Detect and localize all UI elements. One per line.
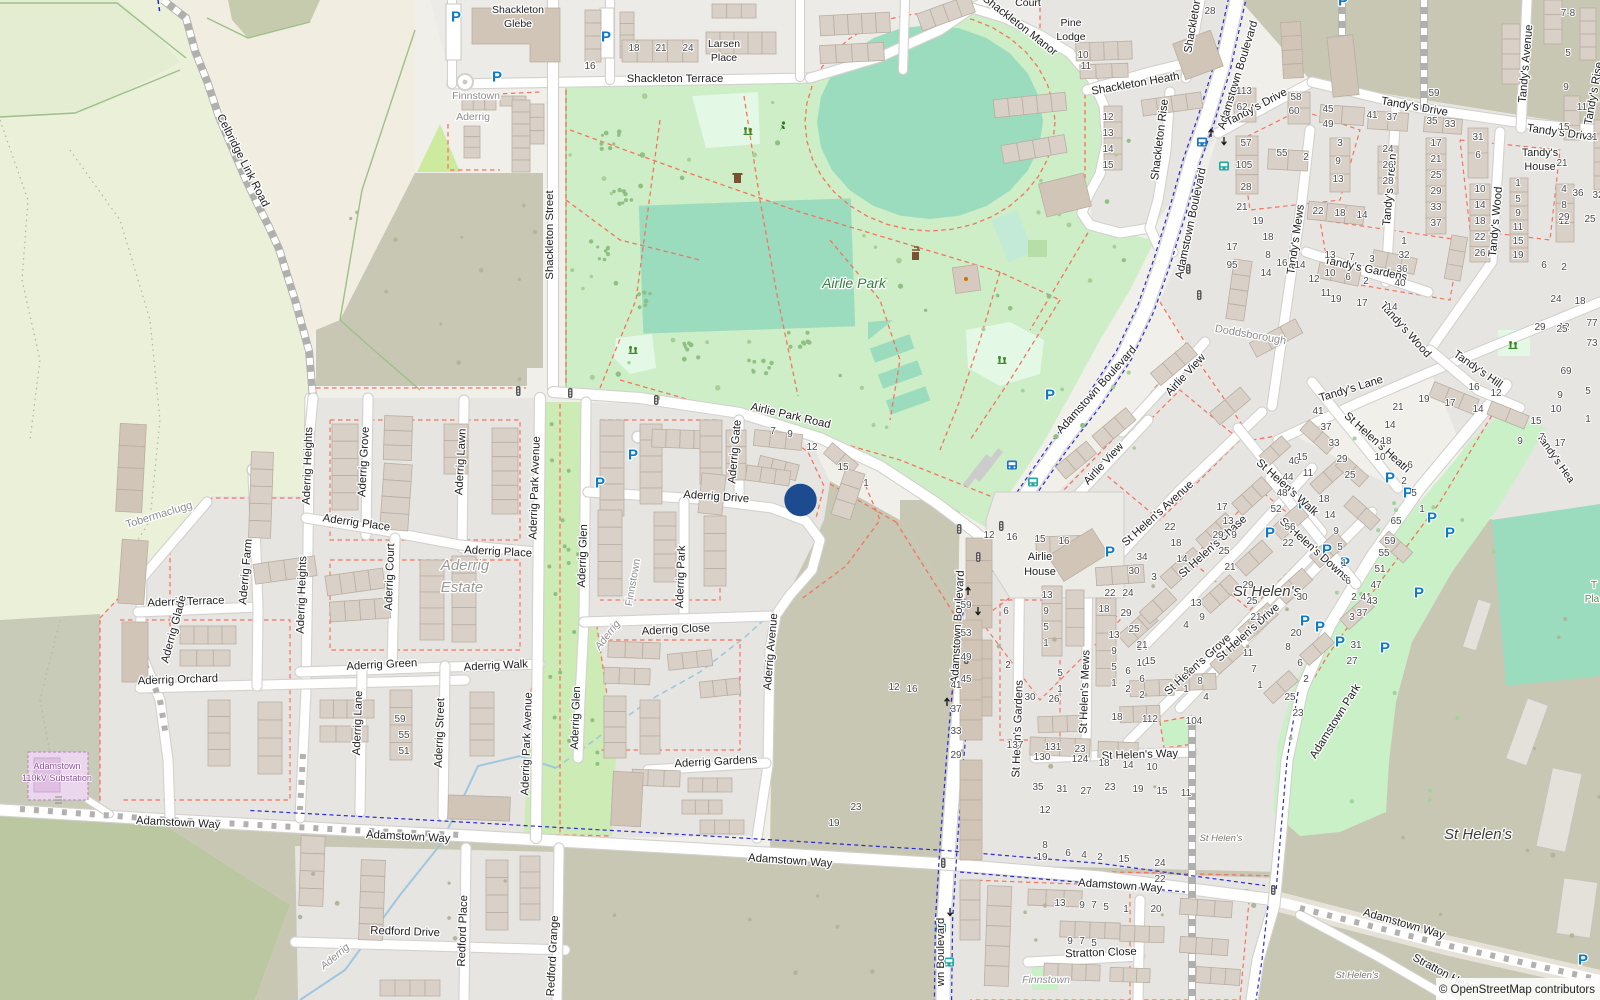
svg-text:Aderrig: Aderrig — [456, 111, 490, 123]
svg-text:35: 35 — [1426, 116, 1438, 127]
svg-text:Redford Place: Redford Place — [456, 895, 470, 967]
svg-text:23: 23 — [1292, 708, 1304, 719]
svg-text:P: P — [1045, 386, 1055, 403]
svg-text:104: 104 — [1186, 716, 1203, 727]
svg-text:105: 105 — [1236, 160, 1253, 171]
svg-text:Adamstown: Adamstown — [33, 761, 80, 771]
svg-text:49: 49 — [960, 652, 972, 663]
svg-text:45: 45 — [960, 674, 972, 685]
svg-text:41: 41 — [950, 680, 962, 691]
svg-text:18: 18 — [1098, 758, 1110, 769]
svg-text:14: 14 — [1260, 268, 1272, 279]
svg-text:22: 22 — [1154, 874, 1166, 885]
svg-text:P: P — [1105, 543, 1115, 560]
svg-text:P: P — [1300, 612, 1310, 629]
svg-text:P: P — [1385, 469, 1395, 486]
svg-text:33: 33 — [950, 726, 962, 737]
svg-text:26: 26 — [1474, 248, 1486, 259]
svg-text:12: 12 — [1102, 112, 1114, 123]
svg-text:25: 25 — [1430, 170, 1442, 181]
svg-text:5: 5 — [1057, 668, 1063, 679]
svg-text:Pine: Pine — [1060, 17, 1081, 29]
svg-text:© OpenStreetMap contributors: © OpenStreetMap contributors — [1439, 984, 1595, 996]
svg-text:25: 25 — [1128, 624, 1140, 635]
svg-text:13: 13 — [1332, 174, 1344, 185]
svg-text:47: 47 — [1370, 580, 1382, 591]
svg-text:8: 8 — [1285, 642, 1291, 653]
svg-text:18: 18 — [628, 43, 640, 54]
svg-text:3: 3 — [1337, 138, 1343, 149]
svg-text:10: 10 — [1550, 404, 1562, 415]
svg-text:31: 31 — [1350, 640, 1362, 651]
svg-text:St Helen's: St Helen's — [1335, 970, 1378, 981]
svg-text:1: 1 — [1515, 178, 1521, 189]
svg-text:9: 9 — [1517, 436, 1523, 447]
svg-text:P: P — [1335, 633, 1345, 650]
svg-text:29: 29 — [1336, 454, 1348, 465]
svg-text:16: 16 — [1468, 382, 1480, 393]
svg-text:Shackleton Terrace: Shackleton Terrace — [627, 73, 724, 85]
svg-text:22: 22 — [1474, 232, 1486, 243]
svg-text:55: 55 — [1378, 548, 1390, 559]
svg-text:73: 73 — [1586, 338, 1598, 349]
svg-text:18: 18 — [1574, 296, 1586, 307]
svg-text:23: 23 — [1104, 782, 1116, 793]
svg-text:29: 29 — [950, 750, 962, 761]
svg-text:6: 6 — [1297, 658, 1303, 669]
svg-text:P: P — [1380, 639, 1390, 656]
svg-text:6: 6 — [1475, 150, 1481, 161]
svg-text:4: 4 — [1203, 692, 1209, 703]
svg-text:28: 28 — [1240, 182, 1252, 193]
svg-text:P: P — [595, 474, 605, 491]
svg-text:5: 5 — [1043, 622, 1049, 633]
svg-text:25: 25 — [1246, 596, 1258, 607]
svg-text:18: 18 — [1380, 436, 1392, 447]
svg-text:P: P — [1315, 618, 1325, 635]
svg-text:15: 15 — [1034, 534, 1046, 545]
svg-text:15: 15 — [1102, 160, 1114, 171]
svg-text:29: 29 — [1430, 186, 1442, 197]
svg-text:37: 37 — [1430, 218, 1442, 229]
svg-text:5: 5 — [1585, 386, 1591, 397]
svg-text:Larsen: Larsen — [708, 38, 740, 50]
svg-text:21: 21 — [1250, 612, 1262, 623]
svg-text:P: P — [1445, 524, 1455, 541]
svg-text:6: 6 — [1345, 272, 1351, 283]
svg-text:51: 51 — [1374, 564, 1386, 575]
svg-text:43: 43 — [1366, 596, 1378, 607]
svg-text:5: 5 — [1515, 194, 1521, 205]
svg-text:17: 17 — [1226, 242, 1238, 253]
svg-text:45: 45 — [1322, 104, 1334, 115]
svg-text:7-8: 7-8 — [1561, 8, 1576, 19]
svg-text:Tandy's: Tandy's — [1522, 147, 1559, 159]
svg-text:2: 2 — [1005, 660, 1011, 671]
svg-text:19: 19 — [1252, 216, 1264, 227]
svg-text:21: 21 — [1392, 402, 1404, 413]
svg-text:31: 31 — [1472, 132, 1484, 143]
svg-text:Aderrig Street: Aderrig Street — [433, 697, 447, 768]
svg-text:17: 17 — [1356, 298, 1368, 309]
svg-text:37: 37 — [1320, 422, 1332, 433]
svg-text:9: 9 — [1557, 390, 1563, 401]
svg-text:10: 10 — [1374, 452, 1386, 463]
svg-text:24: 24 — [1550, 294, 1562, 305]
svg-text:6: 6 — [1345, 576, 1351, 587]
svg-text:Glebe: Glebe — [504, 18, 532, 30]
svg-text:14: 14 — [1122, 760, 1134, 771]
svg-text:124: 124 — [1072, 754, 1089, 765]
svg-text:Aderrig Lane: Aderrig Lane — [351, 690, 365, 755]
svg-text:36: 36 — [1396, 264, 1408, 275]
svg-text:P: P — [1265, 524, 1275, 541]
svg-text:6: 6 — [1003, 606, 1009, 617]
svg-text:53: 53 — [960, 628, 972, 639]
svg-text:113: 113 — [1236, 86, 1252, 97]
svg-text:28: 28 — [1382, 176, 1394, 187]
svg-text:11: 11 — [1181, 788, 1192, 799]
svg-text:1: 1 — [863, 478, 869, 489]
svg-text:2: 2 — [1351, 592, 1357, 603]
svg-text:29: 29 — [1242, 580, 1254, 591]
svg-text:8: 8 — [1265, 250, 1271, 261]
svg-text:12: 12 — [983, 530, 995, 541]
svg-text:15: 15 — [1144, 656, 1156, 667]
svg-text:House: House — [1524, 161, 1555, 173]
svg-text:15: 15 — [1558, 122, 1570, 133]
svg-text:25: 25 — [1584, 214, 1596, 225]
svg-text:40: 40 — [1394, 278, 1406, 289]
svg-text:6: 6 — [1541, 260, 1547, 271]
svg-text:Estate: Estate — [441, 579, 484, 596]
svg-text:11: 11 — [1081, 61, 1092, 72]
svg-text:12: 12 — [1039, 805, 1051, 816]
svg-text:21: 21 — [1224, 562, 1236, 573]
svg-text:22: 22 — [1282, 538, 1294, 549]
svg-text:30: 30 — [1296, 592, 1308, 603]
svg-text:2: 2 — [1139, 690, 1145, 701]
svg-text:34: 34 — [1136, 552, 1148, 563]
svg-text:12: 12 — [806, 442, 818, 453]
svg-text:27: 27 — [1346, 656, 1358, 667]
svg-text:Aderrig Court: Aderrig Court — [383, 542, 397, 610]
svg-text:11: 11 — [1303, 468, 1314, 479]
svg-text:13: 13 — [1324, 250, 1336, 261]
svg-text:24: 24 — [1154, 858, 1166, 869]
svg-text:30: 30 — [1128, 566, 1140, 577]
svg-text:Redford Drive: Redford Drive — [370, 925, 440, 939]
svg-text:14: 14 — [1324, 510, 1336, 521]
svg-text:16: 16 — [584, 61, 596, 72]
svg-text:17: 17 — [1430, 138, 1442, 149]
svg-text:33: 33 — [1430, 202, 1442, 213]
svg-text:59: 59 — [960, 600, 972, 611]
svg-text:4: 4 — [1081, 850, 1087, 861]
svg-text:112: 112 — [1142, 714, 1158, 725]
svg-text:5: 5 — [1565, 48, 1571, 59]
svg-text:7: 7 — [1091, 900, 1097, 911]
svg-text:51: 51 — [398, 746, 410, 757]
svg-text:15: 15 — [1296, 452, 1308, 463]
svg-text:19: 19 — [1036, 852, 1048, 863]
svg-text:65: 65 — [1390, 516, 1402, 527]
svg-text:9: 9 — [1199, 612, 1205, 623]
svg-text:Finnstown: Finnstown — [452, 90, 500, 102]
svg-text:House: House — [1024, 566, 1056, 578]
svg-text:P: P — [628, 446, 638, 463]
svg-text:19: 19 — [1132, 784, 1144, 795]
svg-text:6: 6 — [1065, 848, 1071, 859]
svg-text:P: P — [492, 68, 502, 85]
svg-text:10: 10 — [1146, 762, 1158, 773]
svg-text:49: 49 — [1322, 119, 1334, 130]
svg-text:25: 25 — [1556, 324, 1568, 335]
svg-text:33: 33 — [1444, 119, 1456, 130]
svg-text:17: 17 — [1554, 438, 1566, 449]
svg-text:4: 4 — [1561, 184, 1567, 195]
svg-text:2: 2 — [1097, 852, 1103, 863]
svg-text:18: 18 — [1334, 208, 1346, 219]
svg-text:St Helen's: St Helen's — [1444, 826, 1512, 843]
svg-text:12: 12 — [1490, 388, 1502, 399]
svg-text:18: 18 — [1170, 538, 1182, 549]
svg-text:1: 1 — [1419, 504, 1425, 515]
svg-text:55: 55 — [398, 730, 410, 741]
svg-text:35: 35 — [1032, 782, 1044, 793]
svg-text:31: 31 — [1586, 132, 1598, 143]
svg-text:P: P — [1578, 951, 1588, 968]
svg-text:1: 1 — [1341, 558, 1347, 569]
svg-text:16: 16 — [1058, 536, 1070, 547]
svg-text:18: 18 — [1262, 232, 1274, 243]
svg-text:131: 131 — [1045, 742, 1062, 753]
svg-text:16: 16 — [906, 684, 918, 695]
svg-text:P: P — [451, 8, 461, 25]
svg-text:14: 14 — [1356, 210, 1368, 221]
svg-text:16: 16 — [1006, 532, 1018, 543]
svg-text:9: 9 — [1043, 606, 1049, 617]
svg-text:3: 3 — [1369, 254, 1375, 265]
svg-text:59: 59 — [394, 714, 406, 725]
svg-text:19: 19 — [1512, 250, 1524, 261]
svg-text:23: 23 — [1074, 744, 1086, 755]
svg-text:18: 18 — [1098, 604, 1110, 615]
svg-text:37: 37 — [1356, 608, 1368, 619]
svg-text:9: 9 — [1111, 646, 1117, 657]
svg-text:29: 29 — [1212, 530, 1224, 541]
svg-text:3: 3 — [1349, 612, 1355, 623]
svg-text:19: 19 — [1418, 394, 1430, 405]
svg-text:5: 5 — [1103, 902, 1109, 913]
svg-text:Stratton Close: Stratton Close — [1065, 946, 1137, 960]
svg-text:9: 9 — [1563, 82, 1569, 93]
svg-text:11: 11 — [1577, 102, 1588, 113]
svg-text:60: 60 — [1288, 106, 1300, 117]
svg-text:Lodge: Lodge — [1056, 31, 1085, 43]
svg-text:9: 9 — [1079, 900, 1085, 911]
svg-text:22: 22 — [1312, 206, 1324, 217]
svg-text:Pla: Pla — [1585, 594, 1600, 605]
svg-text:Place: Place — [711, 52, 737, 64]
svg-text:7: 7 — [770, 426, 776, 437]
svg-text:25: 25 — [1344, 470, 1356, 481]
svg-text:1: 1 — [1183, 684, 1189, 695]
svg-text:9: 9 — [1333, 526, 1339, 537]
svg-text:1: 1 — [1585, 414, 1591, 425]
svg-text:17: 17 — [1444, 398, 1456, 409]
svg-text:7: 7 — [1251, 664, 1257, 675]
svg-text:24: 24 — [682, 43, 694, 54]
svg-text:17: 17 — [1216, 502, 1228, 513]
svg-text:Shackleton: Shackleton — [492, 4, 544, 16]
svg-text:10: 10 — [1077, 50, 1089, 61]
svg-text:7: 7 — [1539, 432, 1545, 443]
svg-text:Aderrig Glen: Aderrig Glen — [569, 686, 583, 750]
svg-text:41: 41 — [1312, 406, 1324, 417]
svg-text:9: 9 — [1335, 156, 1341, 167]
svg-text:7: 7 — [1079, 936, 1085, 947]
svg-text:11: 11 — [1243, 648, 1254, 659]
svg-text:25: 25 — [1218, 546, 1230, 557]
svg-text:62: 62 — [1236, 102, 1248, 113]
svg-text:33: 33 — [1328, 438, 1340, 449]
svg-text:8: 8 — [1042, 840, 1048, 851]
svg-text:13: 13 — [1190, 598, 1202, 609]
svg-text:26: 26 — [1048, 694, 1060, 705]
svg-text:12: 12 — [1308, 274, 1320, 285]
svg-text:5: 5 — [1183, 666, 1189, 677]
svg-text:6: 6 — [1407, 460, 1413, 471]
svg-text:2: 2 — [1401, 476, 1407, 487]
svg-text:52: 52 — [1270, 504, 1282, 515]
svg-text:16: 16 — [1276, 258, 1288, 269]
svg-text:6: 6 — [1125, 666, 1131, 677]
svg-text:14: 14 — [1472, 404, 1484, 415]
svg-text:2: 2 — [1125, 684, 1131, 695]
svg-text:41: 41 — [1366, 110, 1378, 121]
svg-text:36: 36 — [1572, 188, 1584, 199]
svg-text:T: T — [1591, 580, 1597, 591]
svg-text:5: 5 — [1091, 938, 1097, 949]
svg-text:13: 13 — [1102, 128, 1114, 139]
svg-text:30: 30 — [1024, 692, 1036, 703]
svg-text:P: P — [1414, 584, 1424, 601]
svg-text:32: 32 — [1398, 250, 1410, 261]
svg-text:Court: Court — [1015, 0, 1041, 9]
svg-text:P: P — [1427, 509, 1437, 526]
svg-text:26: 26 — [1382, 160, 1394, 171]
svg-text:59: 59 — [1384, 536, 1396, 547]
svg-text:31: 31 — [1056, 784, 1068, 795]
svg-text:24: 24 — [1122, 588, 1134, 599]
svg-text:58: 58 — [1290, 92, 1302, 103]
svg-text:3: 3 — [1151, 572, 1157, 583]
svg-text:15: 15 — [1156, 786, 1168, 797]
svg-text:24: 24 — [1382, 144, 1394, 155]
svg-text:15: 15 — [1530, 416, 1542, 427]
svg-text:19: 19 — [828, 818, 840, 829]
svg-text:14: 14 — [1474, 200, 1486, 211]
svg-text:wn Boulevard: wn Boulevard — [935, 918, 947, 987]
svg-text:44: 44 — [1282, 472, 1294, 483]
svg-text:Aderrig Glen: Aderrig Glen — [576, 524, 590, 588]
svg-text:1: 1 — [1123, 904, 1129, 915]
svg-text:14: 14 — [1176, 554, 1188, 565]
svg-text:Finnstown: Finnstown — [1022, 974, 1070, 986]
svg-text:5: 5 — [1411, 488, 1417, 499]
svg-text:77: 77 — [1586, 318, 1598, 329]
svg-text:6: 6 — [1139, 674, 1145, 685]
svg-text:22: 22 — [1164, 522, 1176, 533]
svg-text:P: P — [601, 28, 611, 45]
svg-text:37: 37 — [1386, 112, 1398, 123]
svg-text:27: 27 — [1080, 786, 1092, 797]
svg-text:29: 29 — [1558, 212, 1570, 223]
svg-text:9: 9 — [1067, 936, 1073, 947]
svg-text:13: 13 — [1108, 630, 1120, 641]
svg-text:9: 9 — [1515, 208, 1521, 219]
svg-text:69: 69 — [1560, 366, 1572, 377]
svg-text:32: 32 — [1592, 190, 1600, 201]
svg-text:9: 9 — [1231, 530, 1237, 541]
svg-text:1: 1 — [1111, 678, 1117, 689]
svg-text:1: 1 — [1257, 680, 1263, 691]
svg-text:7: 7 — [1349, 252, 1355, 263]
svg-text:9: 9 — [787, 429, 793, 440]
svg-text:Airlie Park: Airlie Park — [821, 275, 887, 291]
svg-text:21: 21 — [1556, 158, 1568, 169]
svg-text:29: 29 — [1534, 322, 1546, 333]
svg-text:130: 130 — [1034, 752, 1051, 763]
svg-text:22: 22 — [1104, 588, 1116, 599]
svg-text:13: 13 — [1222, 516, 1234, 527]
svg-text:5: 5 — [1337, 542, 1343, 553]
svg-text:14: 14 — [1102, 144, 1114, 155]
svg-text:2: 2 — [1561, 262, 1567, 273]
svg-text:10: 10 — [1474, 184, 1486, 195]
svg-text:56: 56 — [1284, 522, 1296, 533]
svg-text:110kV Substation: 110kV Substation — [22, 773, 92, 783]
svg-text:37: 37 — [950, 704, 962, 715]
svg-text:8: 8 — [1197, 676, 1203, 687]
svg-text:P: P — [1338, 0, 1348, 9]
svg-text:137: 137 — [1007, 740, 1024, 751]
svg-text:95: 95 — [1226, 260, 1238, 271]
svg-text:59: 59 — [1428, 88, 1440, 99]
svg-text:55: 55 — [1276, 148, 1288, 159]
svg-text:18: 18 — [1318, 494, 1330, 505]
svg-text:15: 15 — [837, 462, 849, 473]
svg-text:15: 15 — [1512, 236, 1524, 247]
svg-text:13: 13 — [1054, 898, 1066, 909]
svg-text:14: 14 — [1386, 302, 1398, 313]
svg-text:13: 13 — [1041, 590, 1053, 601]
svg-text:18: 18 — [1111, 712, 1123, 723]
svg-text:14: 14 — [1294, 260, 1306, 271]
svg-text:Airlie: Airlie — [1028, 551, 1052, 563]
svg-text:1: 1 — [1043, 638, 1049, 649]
svg-text:23: 23 — [850, 802, 862, 813]
svg-text:5: 5 — [1111, 662, 1117, 673]
svg-text:4: 4 — [1183, 620, 1189, 631]
svg-text:18: 18 — [1474, 216, 1486, 227]
svg-text:48: 48 — [1276, 488, 1288, 499]
svg-text:15: 15 — [1118, 854, 1130, 865]
svg-text:19: 19 — [1330, 294, 1342, 305]
svg-text:2: 2 — [1303, 674, 1309, 685]
svg-text:2: 2 — [1303, 152, 1309, 163]
